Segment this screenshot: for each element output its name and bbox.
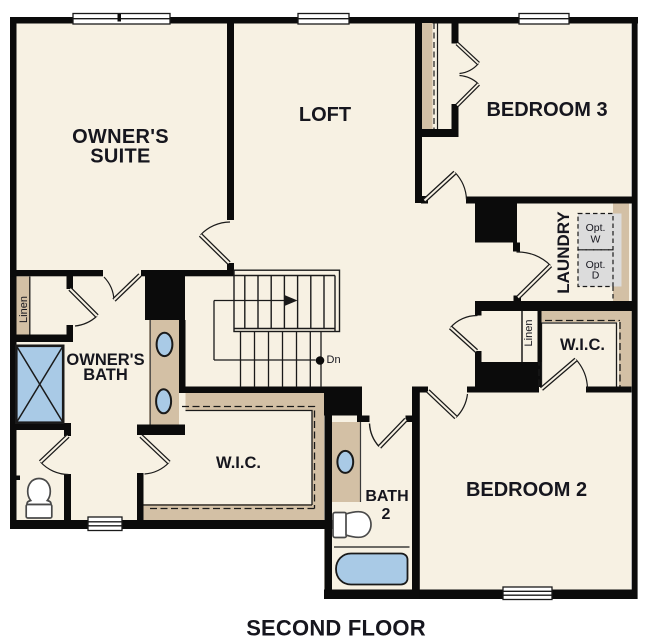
svg-text:BEDROOM 2: BEDROOM 2 bbox=[466, 479, 587, 501]
svg-text:Linen: Linen bbox=[18, 296, 30, 323]
svg-text:LAUNDRY: LAUNDRY bbox=[554, 211, 573, 294]
svg-text:D: D bbox=[592, 270, 600, 282]
svg-text:Opt.: Opt. bbox=[586, 222, 606, 234]
svg-text:W: W bbox=[591, 234, 601, 246]
svg-text:Linen: Linen bbox=[523, 320, 535, 347]
svg-text:LOFT: LOFT bbox=[299, 104, 351, 126]
svg-text:2: 2 bbox=[382, 506, 391, 523]
svg-text:SUITE: SUITE bbox=[90, 146, 150, 168]
svg-text:SECOND FLOOR: SECOND FLOOR bbox=[246, 616, 426, 641]
svg-text:W.I.C.: W.I.C. bbox=[216, 454, 261, 472]
svg-text:BATH: BATH bbox=[83, 366, 128, 384]
svg-text:BATH: BATH bbox=[365, 488, 408, 505]
svg-text:BEDROOM 3: BEDROOM 3 bbox=[486, 99, 607, 121]
svg-text:W.I.C.: W.I.C. bbox=[560, 336, 605, 354]
svg-text:Dn: Dn bbox=[327, 354, 341, 366]
